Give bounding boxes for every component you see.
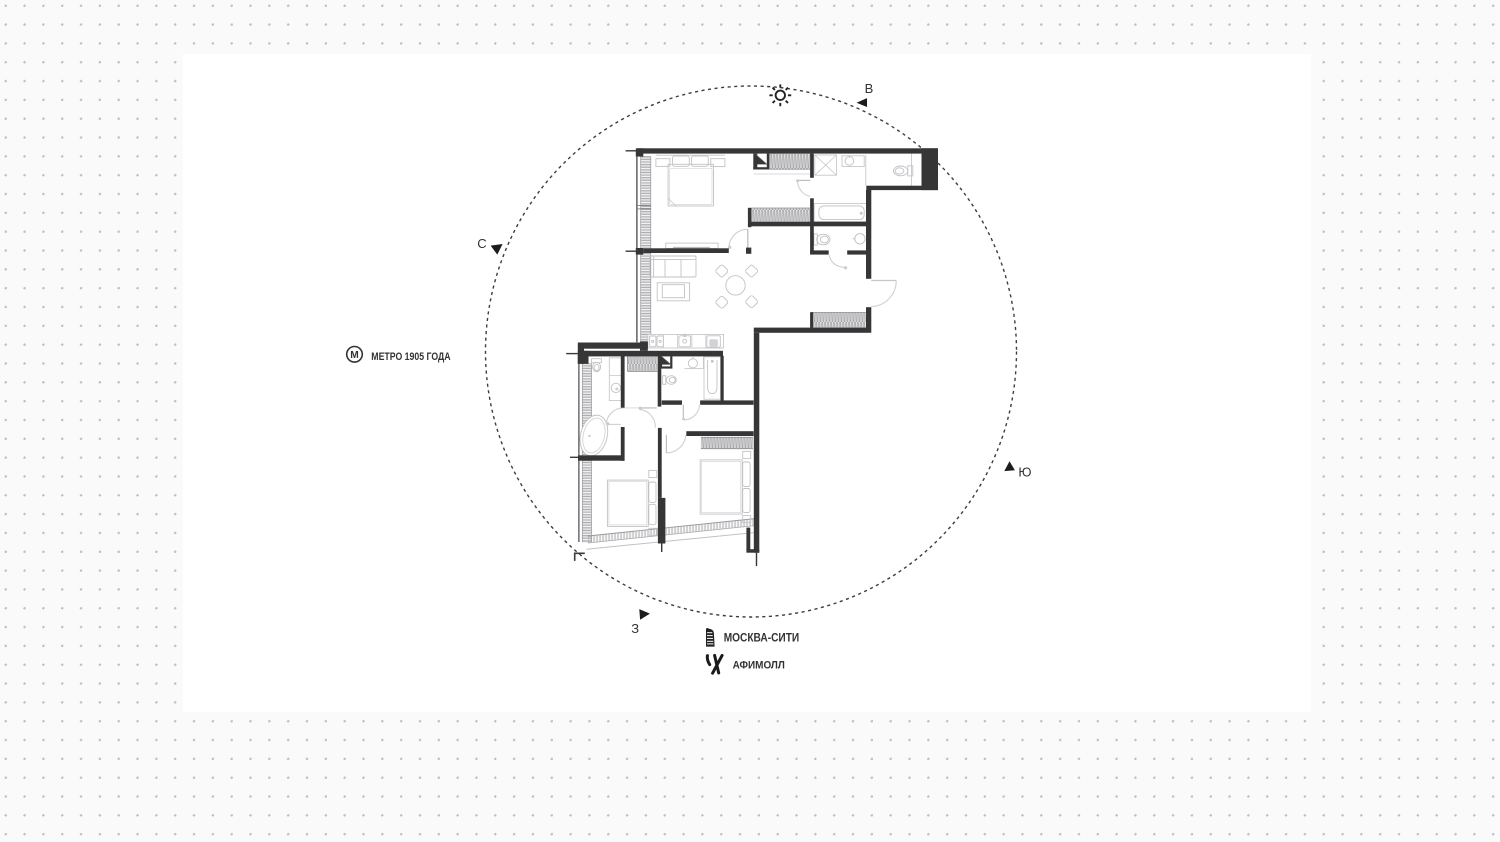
svg-text:Ю: Ю [1018, 465, 1031, 480]
svg-text:МЕТРО 1905 ГОДА: МЕТРО 1905 ГОДА [371, 351, 450, 363]
svg-text:МОСКВА-СИТИ: МОСКВА-СИТИ [724, 631, 800, 645]
svg-text:М: М [350, 350, 359, 361]
svg-text:В: В [865, 81, 874, 96]
svg-text:З: З [631, 621, 639, 636]
svg-text:С: С [477, 236, 486, 251]
svg-text:АФИМОЛЛ: АФИМОЛЛ [733, 660, 785, 672]
